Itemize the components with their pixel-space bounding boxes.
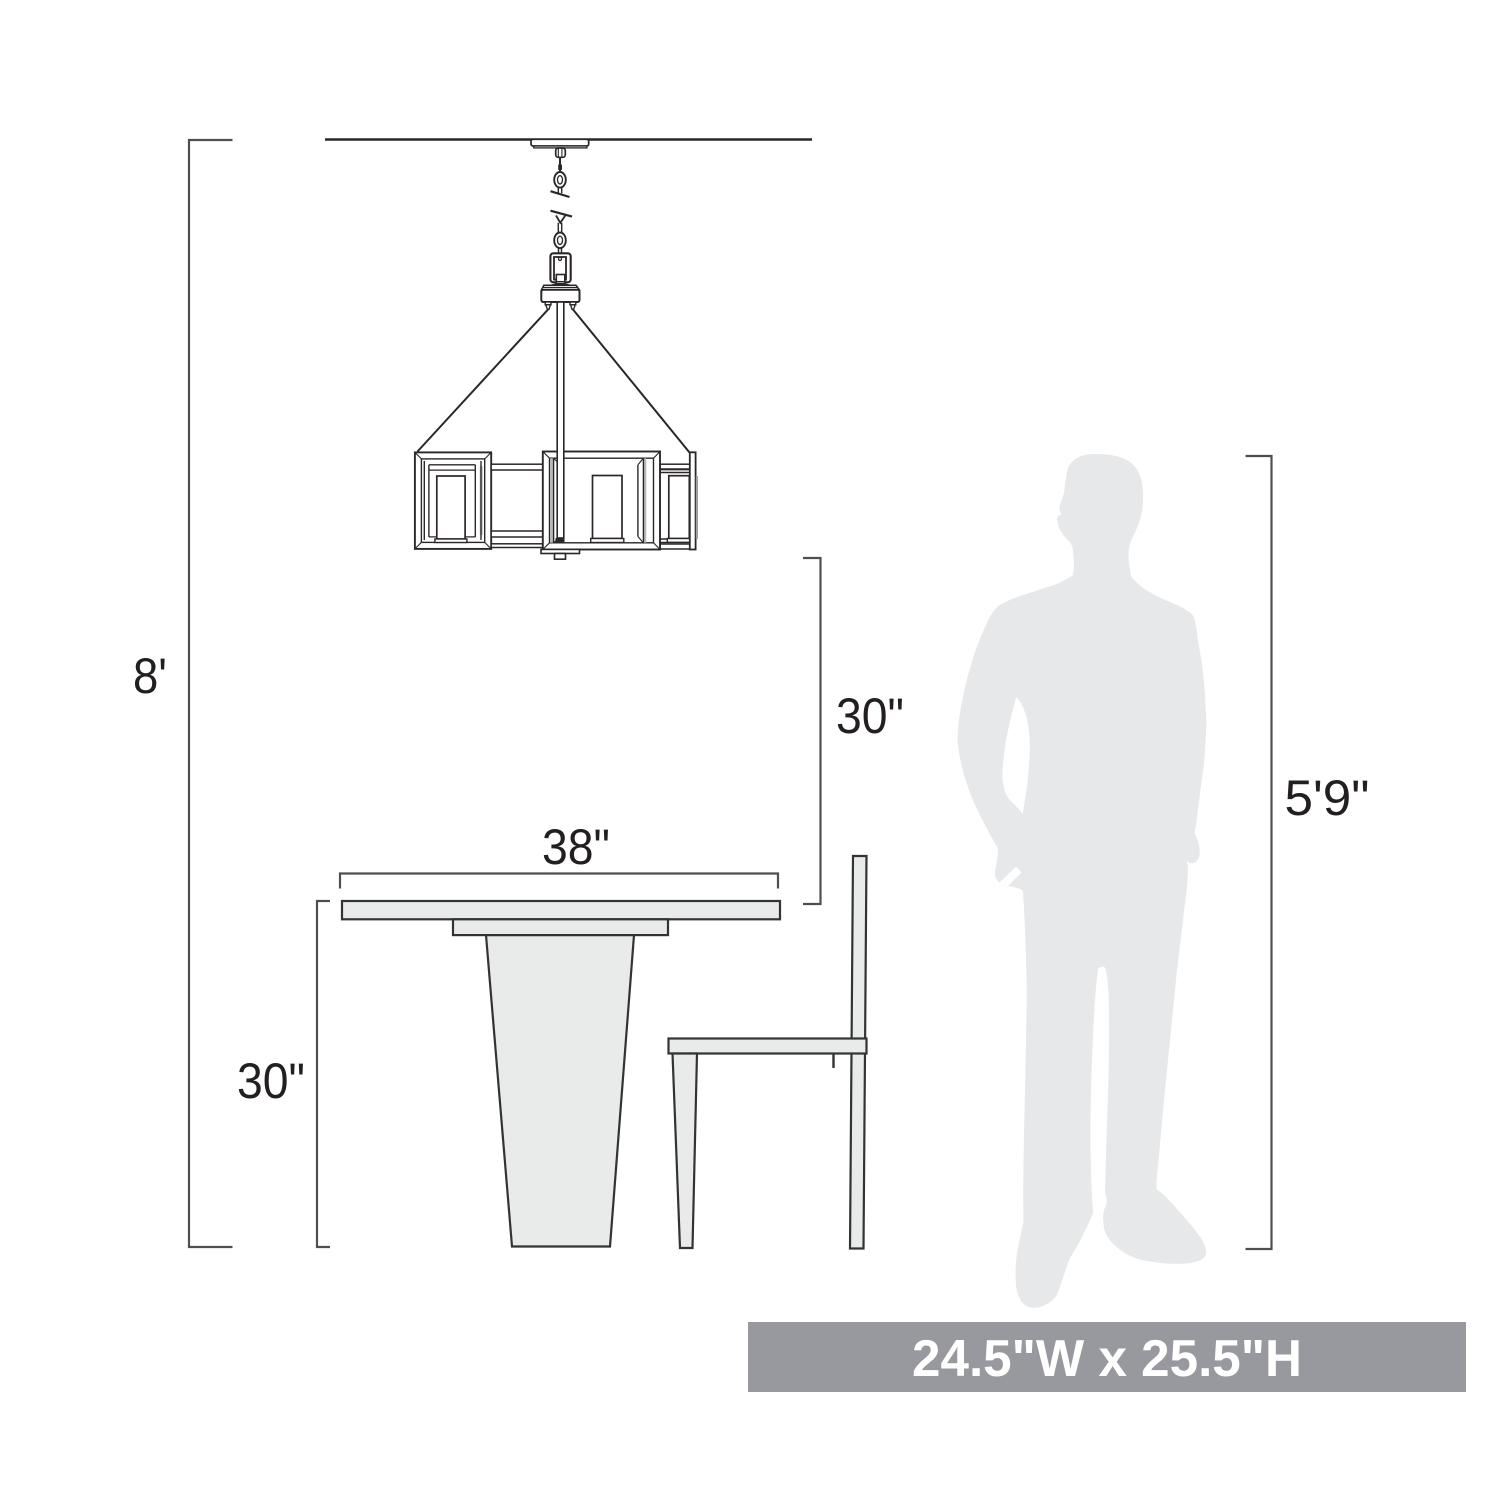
svg-text:24.5"W x 25.5"H: 24.5"W x 25.5"H bbox=[912, 1330, 1302, 1388]
svg-text:30": 30" bbox=[237, 1053, 305, 1109]
svg-text:38": 38" bbox=[542, 819, 610, 875]
svg-text:30": 30" bbox=[836, 688, 904, 744]
svg-text:8': 8' bbox=[133, 648, 167, 704]
svg-text:5'9": 5'9" bbox=[1285, 770, 1370, 826]
